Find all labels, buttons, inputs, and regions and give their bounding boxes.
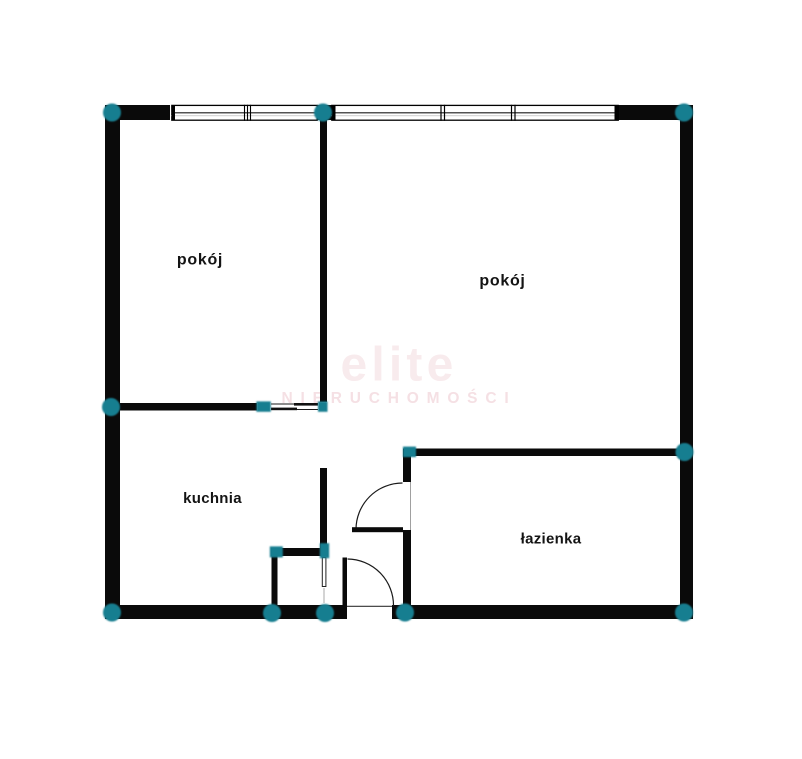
svg-text:kuchnia: kuchnia [183, 490, 242, 507]
svg-text:elite: elite [340, 339, 457, 392]
svg-text:łazienka: łazienka [521, 531, 582, 548]
svg-text:pokój: pokój [479, 273, 525, 290]
svg-text:pokój: pokój [177, 252, 223, 269]
